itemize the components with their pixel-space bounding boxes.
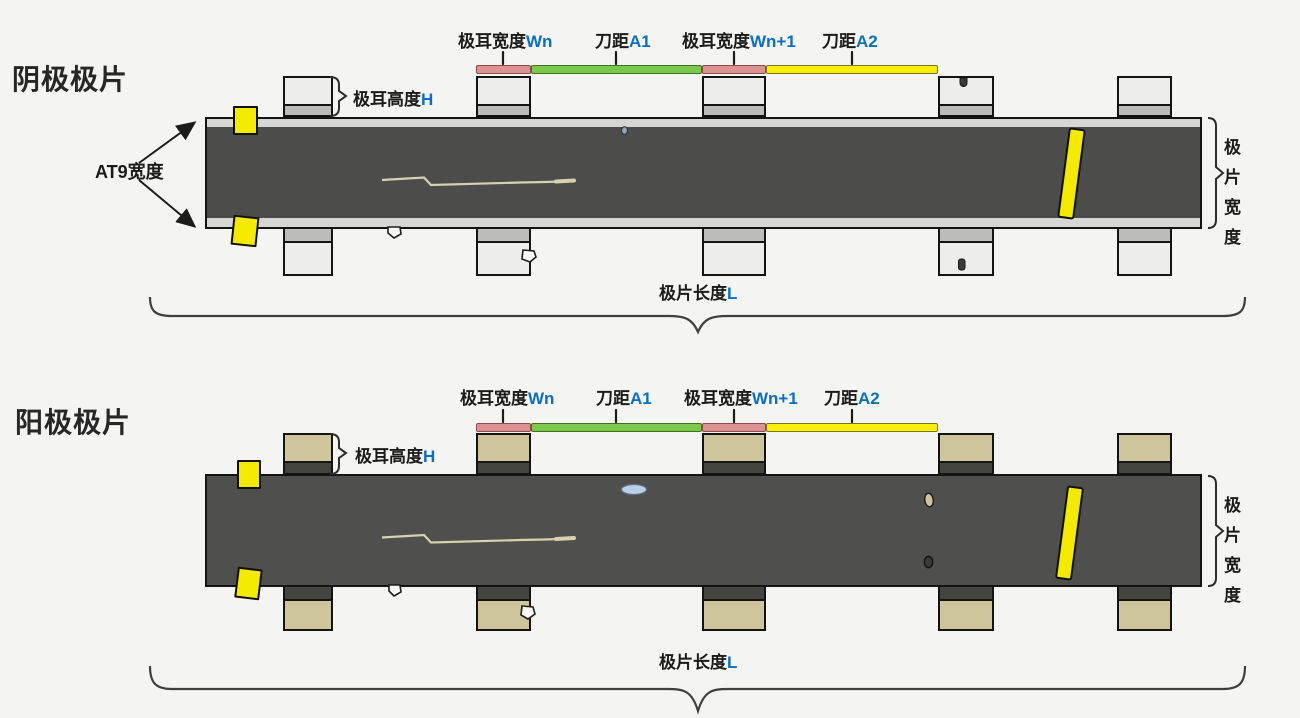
sheet-length-label: 极片长度L [659, 279, 737, 304]
tab [1117, 76, 1172, 117]
knife-a1-bar [531, 423, 702, 432]
tab [938, 433, 994, 475]
label-char: 极 [1224, 491, 1241, 516]
tab-width-wn1-label: 极耳宽度Wn+1 [682, 27, 796, 52]
tab-width-wn-label: 极耳宽度Wn [458, 27, 552, 52]
tab [702, 227, 766, 276]
label-char: 极 [1224, 133, 1241, 158]
electrode-strip [205, 117, 1202, 229]
tab [938, 585, 994, 631]
bar-ticks-anode [503, 410, 852, 422]
tab [283, 585, 333, 631]
tab [476, 227, 531, 276]
knife-a2-bar [766, 423, 938, 432]
label-text: 刀距 [824, 389, 858, 408]
at9-arrow-lower [139, 180, 194, 226]
tab-width-wn-label: 极耳宽度Wn [460, 384, 554, 409]
label-text: 极耳宽度 [458, 32, 526, 51]
label-char: 宽 [1224, 193, 1241, 218]
label-var: A1 [629, 32, 651, 51]
label-char: 度 [1224, 223, 1241, 248]
tab-width-bar [476, 65, 531, 74]
label-var: Wn [528, 389, 554, 408]
knife-a1-label: 刀距A1 [595, 27, 651, 52]
knife-a1-label: 刀距A1 [596, 384, 652, 409]
label-var: A2 [858, 389, 880, 408]
label-text: 刀距 [596, 389, 630, 408]
tab-width-wn1-label: 极耳宽度Wn+1 [684, 384, 798, 409]
label-text: 极耳宽度 [460, 389, 528, 408]
knife-a1-bar [531, 65, 702, 74]
edge-defect-mark [237, 460, 261, 489]
sheet-width-label: 极 片 宽 度 [1224, 491, 1241, 606]
label-text: 刀距 [595, 32, 629, 51]
tab [476, 585, 531, 631]
knife-a2-label: 刀距A2 [822, 27, 878, 52]
sheet-width-label: 极 片 宽 度 [1224, 133, 1241, 248]
edge-defect-mark [234, 567, 263, 601]
label-text: 极耳高度 [355, 447, 423, 466]
edge-defect-mark [233, 106, 258, 135]
cathode-title: 阴极极片 [12, 58, 128, 98]
label-var: L [727, 284, 737, 303]
tab [283, 76, 333, 117]
tab-width-bar [702, 65, 766, 74]
label-char: 片 [1224, 521, 1241, 546]
knife-a2-bar [766, 65, 938, 74]
sheet-length-label: 极片长度L [659, 648, 737, 673]
label-text: 极耳宽度 [684, 389, 752, 408]
label-text: 极片长度 [659, 284, 727, 303]
tab [476, 76, 531, 117]
label-text: 极耳高度 [353, 90, 421, 109]
battery-electrode-diagram: 阴极极片 AT9宽度 极耳宽度Wn 刀距A1 极耳宽度Wn+1 刀距A2 极耳高… [0, 0, 1300, 718]
tab [283, 227, 333, 276]
label-var: Wn+1 [750, 32, 796, 51]
tab-width-bar [702, 423, 766, 432]
annotation-overlay [0, 0, 1300, 718]
tab-height-label: 极耳高度H [353, 85, 433, 110]
at9-width-label: AT9宽度 [95, 158, 164, 184]
tab [1117, 227, 1172, 276]
tab [702, 76, 766, 117]
label-char: 度 [1224, 581, 1241, 606]
label-var: H [423, 447, 435, 466]
tab [1117, 433, 1172, 475]
label-text: 极耳宽度 [682, 32, 750, 51]
label-text: 刀距 [822, 32, 856, 51]
sheet-width-bracket [1208, 476, 1223, 586]
label-text: 极片长度 [659, 653, 727, 672]
label-var: L [727, 653, 737, 672]
label-var: Wn [526, 32, 552, 51]
knife-a2-label: 刀距A2 [824, 384, 880, 409]
label-char: 宽 [1224, 551, 1241, 576]
tab [938, 227, 994, 276]
edge-defect-mark [231, 215, 260, 248]
tab [476, 433, 531, 475]
tab [702, 433, 766, 475]
electrode-strip [205, 474, 1202, 587]
sheet-width-bracket [1208, 118, 1223, 228]
anode-title: 阳极极片 [15, 401, 131, 441]
tab-width-bar [476, 423, 531, 432]
tab [702, 585, 766, 631]
bar-ticks-cathode [503, 52, 852, 64]
tab [283, 433, 333, 475]
label-var: A1 [630, 389, 652, 408]
label-var: Wn+1 [752, 389, 798, 408]
tab-height-label: 极耳高度H [355, 442, 435, 467]
tab [1117, 585, 1172, 631]
label-char: 片 [1224, 163, 1241, 188]
at9-arrow-upper [139, 123, 194, 163]
label-var: A2 [856, 32, 878, 51]
tab [938, 76, 994, 117]
label-var: H [421, 90, 433, 109]
